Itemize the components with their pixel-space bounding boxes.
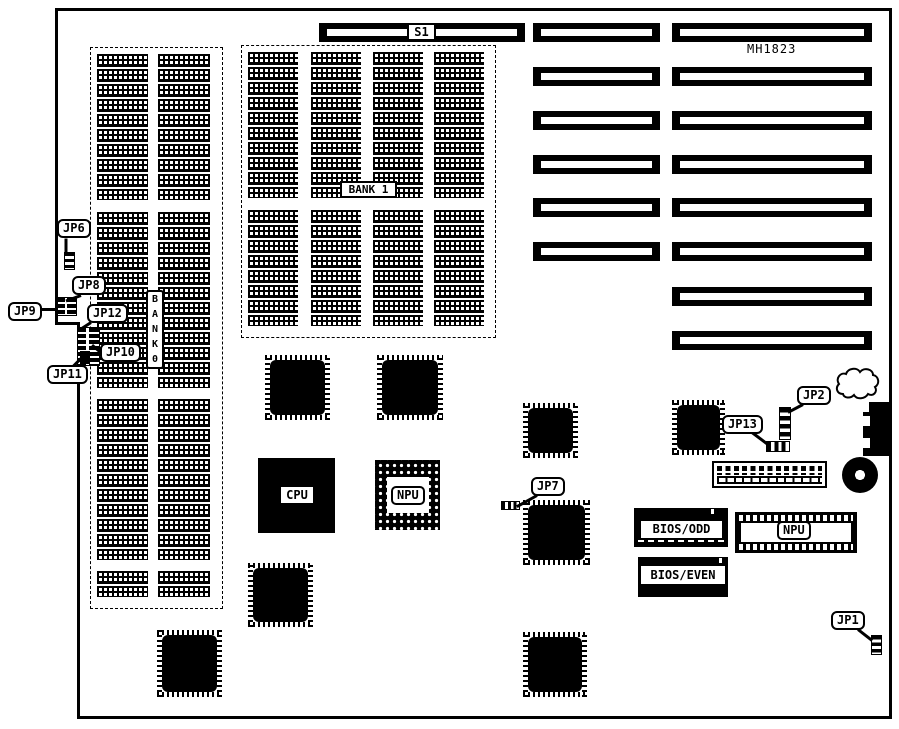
bios-even-label: BIOS/EVEN <box>641 566 725 584</box>
power-connector-blob <box>833 366 881 400</box>
expansion-slot-short <box>533 111 660 130</box>
ram-column <box>158 397 210 560</box>
qfp-chip <box>523 632 587 697</box>
callout-jp13: JP13 <box>722 415 763 434</box>
expansion-slot-short <box>533 67 660 86</box>
board-edge-right <box>889 8 892 719</box>
ram-column <box>158 210 210 388</box>
qfp-chip <box>248 563 313 627</box>
ram-column <box>373 208 423 326</box>
keyboard-connector <box>863 402 892 456</box>
ram-column <box>248 208 298 326</box>
qfp-chip <box>265 355 330 420</box>
callout-jp9: JP9 <box>8 302 42 321</box>
qfp-chip <box>523 500 590 565</box>
qfp-chip <box>523 403 578 458</box>
bios-odd-dashed-line <box>638 540 724 542</box>
keyboard-connector-notch <box>863 416 870 426</box>
qfp-chip <box>672 400 725 455</box>
qfp-chip <box>157 630 222 697</box>
speaker <box>842 457 878 493</box>
board-edge-top <box>55 8 892 11</box>
board-edge-left-upper <box>55 8 58 325</box>
keyboard-connector-notch <box>863 438 870 448</box>
cpu-label: CPU <box>281 487 313 503</box>
callout-jp6: JP6 <box>57 219 91 238</box>
callout-jp2: JP2 <box>797 386 831 405</box>
pin-header-row-top <box>717 466 822 471</box>
callout-jp1: JP1 <box>831 611 865 630</box>
expansion-slot-long <box>672 67 872 86</box>
callout-jp8: JP8 <box>72 276 106 295</box>
expansion-slot-long <box>672 111 872 130</box>
ram-column <box>97 569 148 597</box>
bios-odd-notch <box>711 509 714 514</box>
expansion-slot-long <box>672 331 872 350</box>
motherboard-diagram: S1 MH1823 B A N K 0 BANK 1 <box>0 0 899 729</box>
pin-header-connector <box>712 461 827 488</box>
npu-pga-label: NPU <box>391 486 425 505</box>
pin-header-row-bottom <box>717 476 822 484</box>
jumper-jp1 <box>871 635 882 655</box>
npu-socket-pins-bottom <box>739 544 853 550</box>
pin-header-dash <box>717 473 822 475</box>
bios-even-notch <box>719 558 722 563</box>
ram-column <box>373 50 423 198</box>
ram-column <box>97 52 148 200</box>
board-model-label: MH1823 <box>747 42 796 56</box>
board-edge-step <box>55 322 79 325</box>
expansion-slot-short <box>533 23 660 42</box>
expansion-slot-long <box>672 198 872 217</box>
expansion-slot-long <box>672 287 872 306</box>
bank0-label: B A N K 0 <box>146 290 164 369</box>
s1-label: S1 <box>407 23 436 41</box>
keyboard-connector-notch <box>863 402 869 412</box>
callout-tail <box>65 239 68 255</box>
callout-jp11: JP11 <box>47 365 88 384</box>
expansion-slot-long <box>672 155 872 174</box>
ram-column <box>434 50 484 198</box>
npu-socket-label: NPU <box>777 521 811 540</box>
ram-column <box>97 397 148 560</box>
board-edge-bottom <box>77 716 892 719</box>
ram-column <box>311 208 361 326</box>
callout-jp10: JP10 <box>100 343 141 362</box>
ram-column <box>158 569 210 597</box>
qfp-chip <box>377 355 443 420</box>
jumper-jp6 <box>64 252 75 270</box>
callout-tail <box>42 308 58 311</box>
jumper-jp13 <box>766 441 790 452</box>
callout-jp7: JP7 <box>531 477 565 496</box>
bank1-label: BANK 1 <box>340 181 397 198</box>
expansion-slot-long <box>672 23 872 42</box>
expansion-slot-long <box>672 242 872 261</box>
callout-jp12: JP12 <box>87 304 128 323</box>
bios-odd-label: BIOS/ODD <box>641 521 722 538</box>
ram-column <box>434 208 484 326</box>
ram-column <box>311 50 361 198</box>
ram-column <box>248 50 298 198</box>
expansion-slot-short <box>533 155 660 174</box>
expansion-slot-short <box>533 242 660 261</box>
expansion-slot-short <box>533 198 660 217</box>
ram-column <box>158 52 210 200</box>
